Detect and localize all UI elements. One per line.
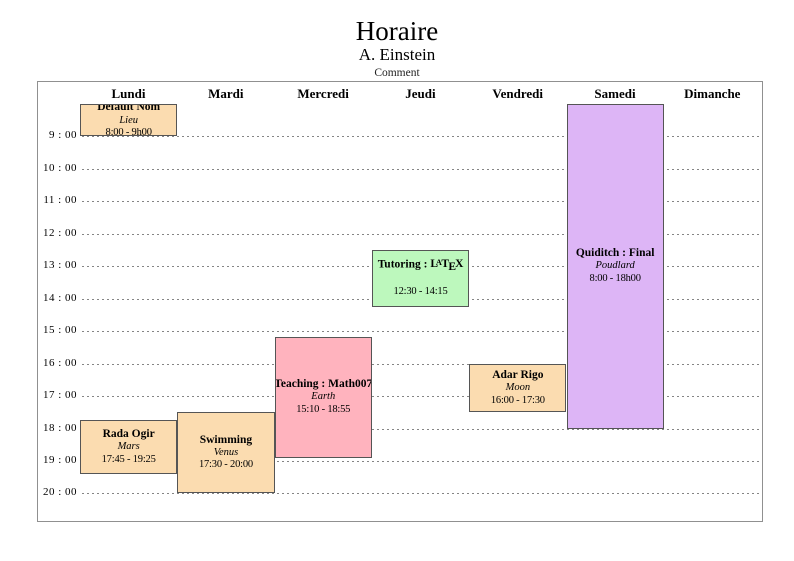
day-header: Mercredi — [275, 86, 372, 102]
event-time: 12:30 - 14:15 — [394, 286, 448, 299]
event-location: Poudlard — [596, 260, 635, 273]
time-label: 19 : 00 — [38, 454, 77, 466]
time-label: 9 : 00 — [38, 129, 77, 141]
event-time: 15:10 - 18:55 — [296, 404, 350, 417]
event-location: Lieu — [119, 115, 138, 127]
time-label: 14 : 00 — [38, 292, 77, 304]
event-location: Venus — [214, 447, 239, 460]
event-title: Quiditch : Final — [576, 247, 655, 260]
day-header: Mardi — [177, 86, 274, 102]
time-label: 10 : 00 — [38, 162, 77, 174]
event-title: Swimming — [200, 434, 252, 447]
event-time: 17:30 - 20:00 — [199, 459, 253, 472]
event-title: Adar Rigo — [492, 369, 543, 382]
event-time: 17:45 - 19:25 — [102, 454, 156, 467]
latex-logo: LATEX — [430, 258, 463, 270]
time-label: 12 : 00 — [38, 227, 77, 239]
page-comment: Comment — [0, 67, 794, 80]
event-time: 8:00 - 18h00 — [590, 273, 641, 286]
time-label: 20 : 00 — [38, 486, 77, 498]
schedule-page: Horaire A. Einstein Comment LundiMardiMe… — [0, 0, 794, 561]
event-title: Teaching : Math007 — [275, 378, 372, 391]
event-block-default-nom: Default NomLieu8:00 - 9h00 — [80, 104, 177, 136]
title-block: Horaire A. Einstein Comment — [0, 17, 794, 80]
page-subtitle: A. Einstein — [0, 46, 794, 65]
event-location: Earth — [311, 391, 335, 404]
day-header: Vendredi — [469, 86, 566, 102]
hour-gridline — [82, 493, 762, 494]
event-time: 8:00 - 9h00 — [106, 127, 152, 137]
timetable-grid: LundiMardiMercrediJeudiVendrediSamediDim… — [37, 81, 763, 522]
event-block-swimming: SwimmingVenus17:30 - 20:00 — [177, 412, 274, 493]
time-label: 17 : 00 — [38, 389, 77, 401]
day-header: Jeudi — [372, 86, 469, 102]
time-label: 18 : 00 — [38, 422, 77, 434]
time-label: 15 : 00 — [38, 324, 77, 336]
event-title: Rada Ogir — [103, 428, 155, 441]
event-block-quiditch-final: Quiditch : FinalPoudlard8:00 - 18h00 — [567, 104, 664, 429]
time-label: 11 : 00 — [38, 194, 77, 206]
event-title: Tutoring : LATEX — [378, 258, 464, 274]
page-title: Horaire — [0, 17, 794, 45]
event-time: 16:00 - 17:30 — [491, 395, 545, 408]
event-block-adar-rigo: Adar RigoMoon16:00 - 17:30 — [469, 364, 566, 413]
day-header: Lundi — [80, 86, 177, 102]
day-header: Dimanche — [664, 86, 761, 102]
event-block-tutoring-latex: Tutoring : LATEX12:30 - 14:15 — [372, 250, 469, 307]
time-label: 16 : 00 — [38, 357, 77, 369]
time-label: 13 : 00 — [38, 259, 77, 271]
event-block-teaching-math007: Teaching : Math007Earth15:10 - 18:55 — [275, 337, 372, 459]
event-block-rada-ogir: Rada OgirMars17:45 - 19:25 — [80, 420, 177, 474]
day-header: Samedi — [567, 86, 664, 102]
event-title: Default Nom — [97, 104, 160, 115]
event-location: Mars — [118, 441, 140, 454]
event-location: Moon — [506, 382, 531, 395]
